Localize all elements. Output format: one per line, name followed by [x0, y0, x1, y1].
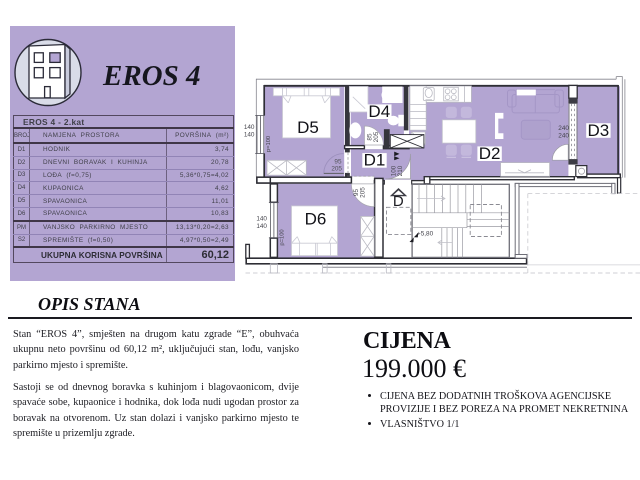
svg-text:+5,80: +5,80 [417, 230, 434, 237]
svg-text:D4: D4 [368, 102, 390, 121]
svg-text:p=100: p=100 [280, 229, 286, 245]
svg-text:205: 205 [360, 187, 367, 198]
svg-text:D5: D5 [297, 118, 319, 137]
svg-text:D1: D1 [364, 151, 386, 170]
svg-text:240: 240 [558, 133, 569, 140]
svg-text:140: 140 [256, 216, 267, 223]
svg-text:210: 210 [397, 165, 404, 176]
svg-text:205: 205 [331, 165, 342, 172]
svg-text:205: 205 [373, 131, 380, 142]
svg-text:95: 95 [334, 158, 342, 165]
svg-text:D2: D2 [479, 144, 501, 163]
svg-text:140: 140 [244, 124, 255, 131]
svg-text:140: 140 [244, 132, 255, 139]
svg-text:140: 140 [256, 223, 267, 230]
svg-text:D: D [393, 193, 404, 210]
svg-text:240: 240 [558, 125, 569, 132]
svg-text:p=100: p=100 [266, 136, 272, 152]
svg-text:D3: D3 [588, 121, 610, 140]
svg-text:D6: D6 [305, 209, 327, 228]
